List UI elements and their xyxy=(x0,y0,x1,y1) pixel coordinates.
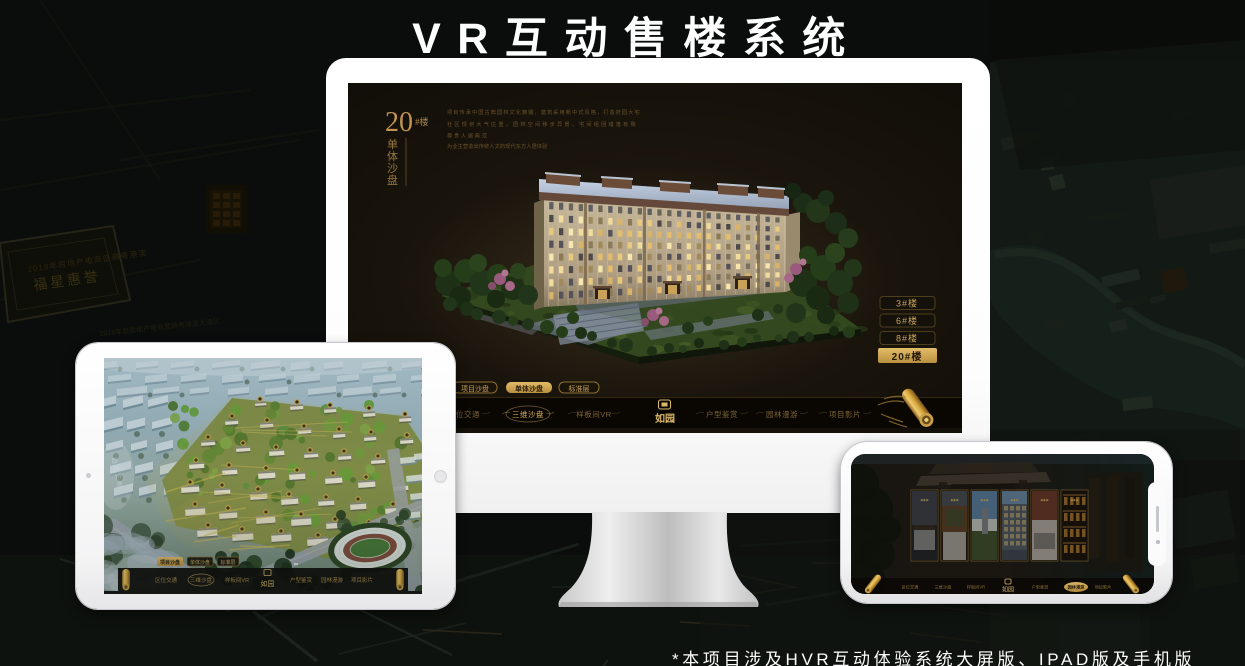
svg-text:沙: 沙 xyxy=(387,162,398,175)
svg-text:样板间VR: 样板间VR xyxy=(576,409,612,419)
svg-text:单体沙盘: 单体沙盘 xyxy=(515,384,543,393)
svg-text:如园: 如园 xyxy=(655,412,675,425)
svg-text:项目沙盘: 项目沙盘 xyxy=(461,384,489,393)
svg-text:区位交通: 区位交通 xyxy=(902,584,920,591)
svg-text:20#楼: 20#楼 xyxy=(892,350,923,363)
svg-text:3#楼: 3#楼 xyxy=(896,298,918,309)
svg-text:社区规划大气庄重，园林空间移步异景，宅间组团错落有致: 社区规划大气庄重，园林空间移步异景，宅间组团错落有致 xyxy=(447,120,638,128)
svg-text:园林漫游: 园林漫游 xyxy=(1068,584,1086,591)
svg-text:#楼: #楼 xyxy=(415,116,429,127)
svg-text:项目影片: 项目影片 xyxy=(829,409,861,419)
svg-text:样板间VR: 样板间VR xyxy=(967,584,985,591)
svg-text:6#楼: 6#楼 xyxy=(896,315,918,326)
svg-text:三维沙盘: 三维沙盘 xyxy=(935,584,952,591)
svg-text:20: 20 xyxy=(385,107,413,138)
svg-text:尊贵人居典范: 尊贵人居典范 xyxy=(447,132,489,140)
svg-text:三维沙盘: 三维沙盘 xyxy=(512,409,544,419)
svg-text:项目传承中国古典园林文化精髓，建筑采用新中式风格，打造府园大: 项目传承中国古典园林文化精髓，建筑采用新中式风格，打造府园大宅 xyxy=(447,108,641,116)
svg-text:盘: 盘 xyxy=(387,173,398,187)
svg-text:户型鉴赏: 户型鉴赏 xyxy=(1032,584,1049,591)
svg-text:单: 单 xyxy=(387,138,398,151)
svg-text:体: 体 xyxy=(387,149,398,163)
svg-text:项目影片: 项目影片 xyxy=(1095,584,1112,591)
svg-text:为业主营造出传统人文的现代东方人居体验: 为业主营造出传统人文的现代东方人居体验 xyxy=(447,142,548,150)
svg-text:标准层: 标准层 xyxy=(569,384,590,393)
svg-text:园林漫游: 园林漫游 xyxy=(766,409,798,419)
svg-text:如园: 如园 xyxy=(1002,586,1014,594)
svg-text:8#楼: 8#楼 xyxy=(896,333,918,344)
svg-text:户型鉴赏: 户型鉴赏 xyxy=(706,409,738,419)
